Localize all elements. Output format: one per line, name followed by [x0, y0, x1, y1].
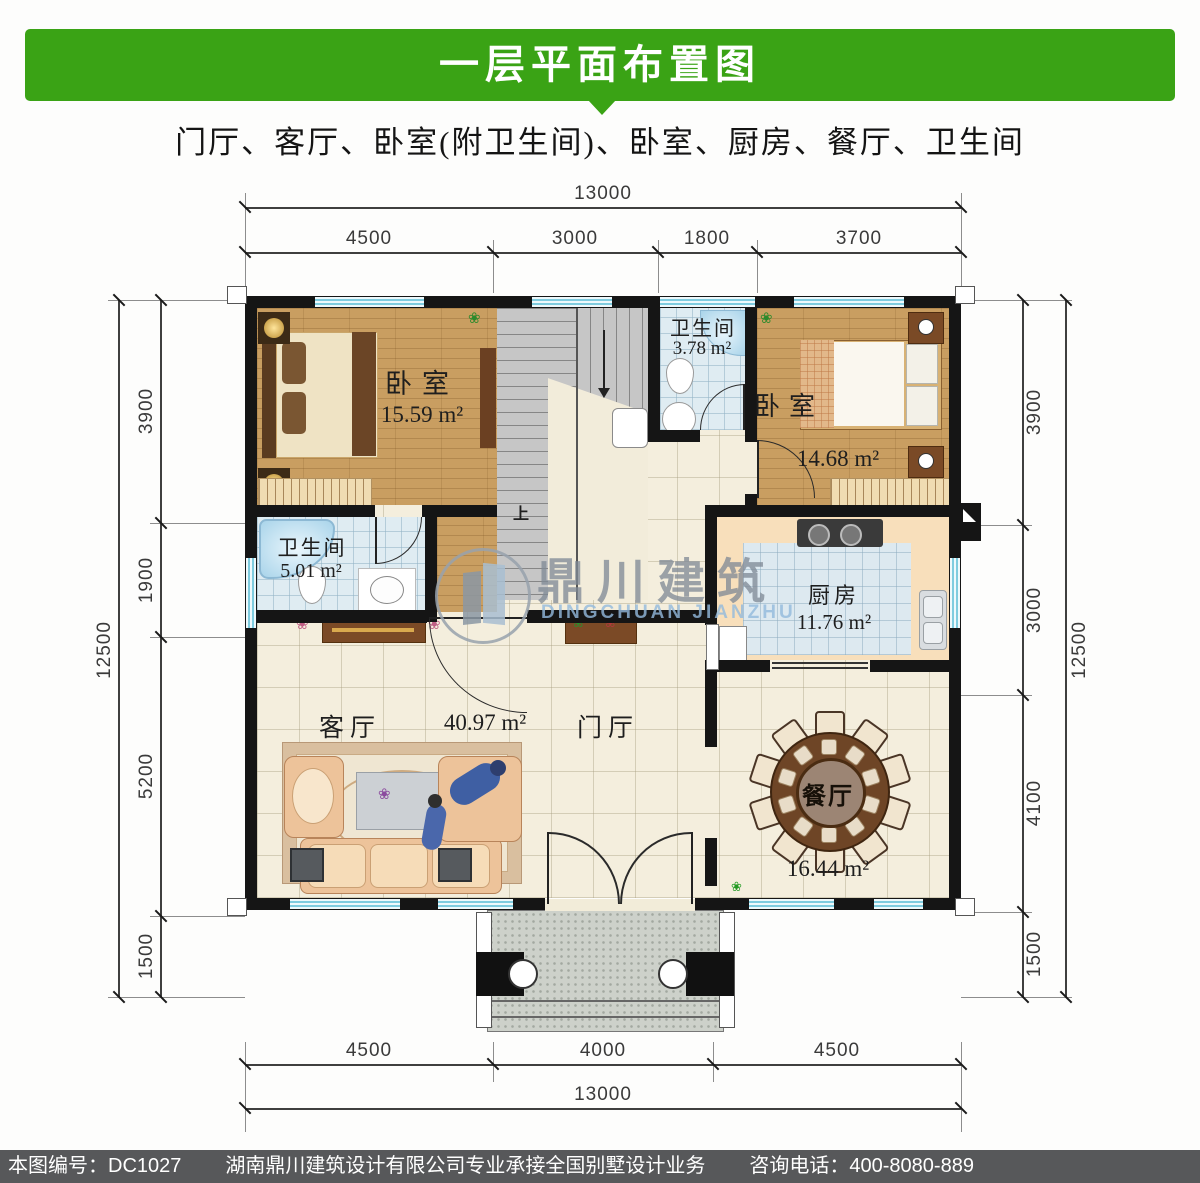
dimension-line-left-overall	[118, 300, 120, 997]
bed-pillow	[282, 342, 306, 384]
porch-column-base-right	[686, 952, 734, 996]
stair-direction-line	[603, 330, 605, 388]
bathroom-top-label: 卫生间	[658, 312, 748, 341]
extension-line	[961, 300, 1072, 301]
interior-wall	[245, 610, 427, 623]
bed-pillow	[906, 344, 938, 384]
dim-top-overall: 13000	[553, 183, 653, 205]
dimension-line-bottom-overall	[245, 1108, 961, 1110]
dimension-line-bottom-segments	[245, 1064, 961, 1066]
footer-bar: 本图编号：DC1027湖南鼎川建筑设计有限公司专业承接全国别墅设计业务咨询电话：…	[0, 1150, 1200, 1183]
bed-pillow	[282, 392, 306, 434]
drawing-number: 本图编号：DC1027	[8, 1155, 181, 1177]
lamp-glow-icon	[264, 318, 284, 338]
page-title: 一层平面布置图	[25, 29, 1175, 101]
nightstand-knob-icon	[918, 453, 934, 469]
wardrobe	[258, 478, 372, 507]
dim-right-overall: 12500	[1069, 615, 1091, 685]
dining-room-label: 餐厅	[788, 776, 868, 811]
table-flowers-icon: ❀	[378, 788, 391, 803]
flue-block	[949, 503, 981, 541]
window	[874, 899, 923, 909]
floor-plan-page: 一层平面布置图 门厅、客厅、卧室(附卫生间)、卧室、厨房、餐厅、卫生间 1300…	[0, 0, 1200, 1183]
living-room-area: 40.97 m²	[420, 710, 550, 736]
corner-cap	[955, 898, 975, 916]
window	[749, 899, 834, 909]
dim-top-seg3: 1800	[657, 228, 757, 250]
door-leaf	[375, 517, 377, 564]
dim-bottom-seg1: 4500	[319, 1040, 419, 1062]
porch-column-right	[658, 959, 688, 989]
interior-wall	[870, 660, 961, 672]
dim-left-seg2: 1900	[136, 545, 158, 615]
interior-wall	[705, 838, 717, 886]
sofa-cushion	[370, 844, 428, 888]
extension-line	[108, 997, 245, 998]
company-name: 湖南鼎川建筑设计有限公司专业承接全国别墅设计业务	[225, 1155, 705, 1177]
window	[246, 558, 256, 628]
corner-cap	[227, 898, 247, 916]
sink-bowl-icon	[923, 596, 943, 618]
extension-line	[493, 240, 494, 293]
dim-left-overall: 12500	[94, 615, 116, 685]
watermark-building-icon	[463, 571, 481, 625]
bathroom-left-area: 5.01 m²	[266, 560, 356, 583]
extension-line	[757, 240, 758, 293]
extension-line	[245, 1042, 246, 1132]
sink-icon	[370, 576, 404, 604]
interior-wall	[245, 505, 375, 517]
window	[660, 297, 755, 307]
dim-right-seg1: 3900	[1024, 377, 1046, 447]
washing-machine	[612, 408, 648, 448]
dim-bottom-seg2: 4000	[553, 1040, 653, 1062]
window	[438, 899, 513, 909]
watermark-building-icon	[483, 563, 505, 625]
dim-left-seg4: 1500	[136, 921, 158, 991]
speaker	[290, 848, 324, 882]
dim-top-seg1: 4500	[319, 228, 419, 250]
interior-wall	[705, 505, 961, 517]
bedroom-left-label: 卧室	[362, 362, 482, 401]
armchair-cushion	[292, 768, 334, 824]
extension-line	[961, 997, 1072, 998]
cabinet	[480, 348, 496, 448]
extension-line	[961, 1042, 962, 1132]
bedroom-left-area: 15.59 m²	[352, 402, 492, 428]
dim-right-seg4: 1500	[1024, 919, 1046, 989]
bathroom-left-label: 卫生间	[262, 532, 362, 562]
dim-top-seg2: 3000	[525, 228, 625, 250]
tv-icon	[332, 628, 414, 632]
watermark: 鼎川建筑 DINGCHUAN JIANZHU	[425, 540, 805, 650]
phone-number: 咨询电话：400-8080-889	[749, 1155, 974, 1177]
porch-step-line	[487, 1016, 722, 1018]
dim-left-seg3: 5200	[136, 741, 158, 811]
window	[950, 558, 960, 628]
dim-left-seg1: 3900	[136, 376, 158, 446]
dim-right-seg3: 4100	[1024, 768, 1046, 838]
person-head-icon	[428, 794, 442, 808]
dim-top-seg4: 3700	[809, 228, 909, 250]
dining-room-area: 16.44 m²	[758, 856, 898, 882]
window	[794, 297, 904, 307]
stairs-up-label: 上	[510, 500, 532, 524]
bathroom-top-area: 3.78 m²	[662, 338, 742, 360]
window	[532, 297, 612, 307]
bed-pillow	[906, 386, 938, 426]
door-leaf	[757, 440, 759, 498]
porch-step-line	[487, 1000, 722, 1002]
watermark-en: DINGCHUAN JIANZHU	[541, 602, 809, 624]
bedroom-right-area: 14.68 m²	[768, 446, 908, 472]
nightstand-knob-icon	[918, 319, 934, 335]
extension-line	[108, 300, 245, 301]
plant-icon: ❀	[731, 880, 742, 893]
burner-icon	[840, 524, 862, 546]
bedroom-right-label: 卧室	[729, 386, 849, 423]
dimension-line-left-segments	[160, 300, 162, 997]
sink-bowl-icon	[923, 622, 943, 644]
window	[315, 297, 424, 307]
place-setting-icon	[821, 827, 837, 843]
living-room-label: 客厅	[300, 708, 400, 744]
dimension-line-right-overall	[1065, 300, 1067, 997]
dim-bottom-seg3: 4500	[787, 1040, 887, 1062]
corner-cap	[955, 286, 975, 304]
bed-headboard	[262, 330, 276, 458]
sliding-door-line	[772, 662, 868, 664]
sliding-door-line	[772, 667, 868, 669]
banner-pointer-triangle	[588, 100, 616, 115]
window	[290, 899, 400, 909]
dim-bottom-overall: 13000	[553, 1084, 653, 1106]
plant-icon: ❀	[760, 312, 773, 327]
wardrobe	[830, 478, 950, 507]
room-list-subtitle: 门厅、客厅、卧室(附卫生间)、卧室、厨房、餐厅、卫生间	[0, 117, 1200, 162]
foyer-label: 门厅	[558, 708, 658, 744]
interior-wall	[705, 672, 717, 747]
entrance-door-leaf	[691, 832, 693, 904]
dimension-line-top-segments	[245, 252, 961, 254]
corner-cap	[227, 286, 247, 304]
burner-icon	[808, 524, 830, 546]
interior-wall	[648, 430, 700, 442]
person-head-icon	[490, 760, 506, 776]
dimension-line-top-overall	[245, 207, 961, 209]
place-setting-icon	[821, 739, 837, 755]
porch-column-left	[508, 959, 538, 989]
down-arrow-icon	[598, 388, 610, 398]
plant-icon: ❀	[468, 312, 481, 327]
speaker	[438, 848, 472, 882]
dim-right-seg2: 3000	[1024, 575, 1046, 645]
